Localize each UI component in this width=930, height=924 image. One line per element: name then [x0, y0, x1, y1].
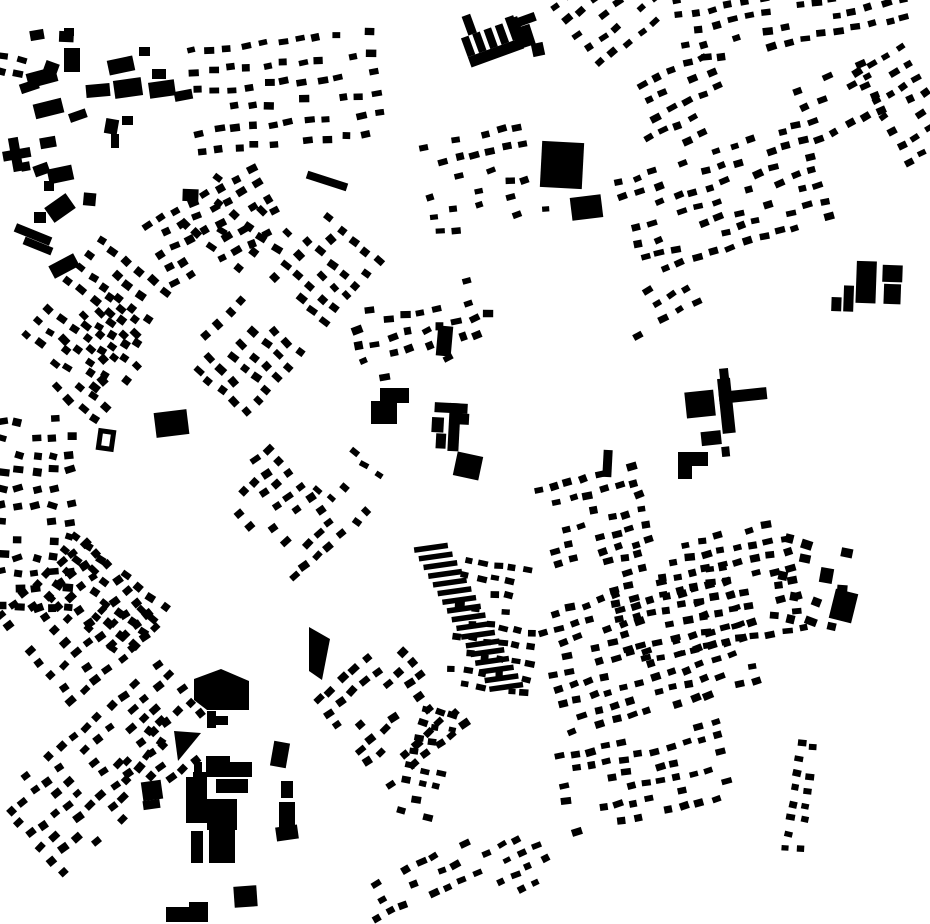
building: [452, 633, 461, 641]
building: [299, 95, 309, 103]
building: [461, 680, 469, 687]
building: [230, 123, 241, 132]
building: [264, 102, 274, 110]
industrial-cross: [719, 368, 729, 381]
building: [230, 102, 239, 110]
building: [111, 134, 119, 148]
building: [13, 536, 22, 543]
building: [447, 666, 455, 672]
building: [507, 564, 516, 572]
building: [48, 552, 57, 560]
building: [781, 845, 788, 851]
courtyard-building-group: [96, 428, 117, 452]
industrial-cross: [701, 430, 722, 446]
building: [64, 451, 74, 460]
building: [104, 118, 119, 135]
building: [207, 799, 237, 830]
building: [226, 63, 235, 71]
building: [837, 585, 848, 594]
building: [0, 518, 6, 525]
building: [436, 228, 445, 234]
industrial-cross: [721, 446, 730, 457]
building: [0, 602, 6, 609]
building: [14, 569, 23, 577]
building: [188, 69, 199, 76]
building: [607, 773, 617, 781]
building: [571, 751, 581, 759]
building: [572, 695, 581, 703]
building: [313, 57, 322, 65]
building: [800, 35, 810, 42]
building: [244, 84, 254, 92]
building: [193, 86, 201, 93]
cross-building: [435, 433, 446, 449]
building: [343, 132, 351, 139]
big-square-hall: [540, 141, 584, 189]
building: [560, 797, 571, 805]
building: [716, 53, 725, 61]
building: [366, 50, 377, 58]
building: [805, 773, 815, 780]
building: [0, 468, 10, 476]
building: [570, 194, 604, 221]
building: [833, 13, 841, 19]
building: [209, 88, 219, 94]
building: [641, 779, 651, 786]
building: [152, 69, 166, 79]
building: [677, 600, 686, 608]
building: [216, 779, 248, 793]
building: [451, 136, 460, 143]
building: [620, 554, 629, 562]
building: [364, 306, 374, 314]
building: [279, 802, 295, 827]
building: [323, 136, 333, 144]
building: [34, 212, 46, 223]
plus-building: [20, 161, 30, 171]
building: [44, 181, 54, 191]
building: [303, 136, 313, 144]
building: [365, 28, 375, 35]
building: [141, 780, 163, 802]
bar-towers: [855, 261, 876, 304]
building: [270, 141, 279, 148]
building: [206, 756, 230, 777]
building: [791, 783, 799, 790]
building: [589, 506, 598, 515]
building: [209, 830, 235, 863]
building: [281, 781, 293, 798]
building: [321, 116, 329, 123]
building: [519, 689, 529, 696]
building: [64, 48, 80, 72]
building: [189, 902, 208, 922]
building: [233, 885, 257, 908]
bar-towers: [843, 285, 854, 311]
building: [222, 45, 231, 52]
bar-towers: [883, 284, 901, 305]
building: [698, 538, 707, 545]
building: [709, 592, 719, 601]
building: [495, 671, 502, 677]
building: [191, 831, 203, 863]
building: [403, 327, 411, 336]
building: [673, 574, 682, 581]
building: [797, 845, 805, 852]
building: [692, 9, 701, 17]
building: [811, 0, 822, 7]
building: [617, 817, 626, 825]
building: [384, 315, 395, 322]
building: [139, 47, 150, 56]
building: [427, 738, 436, 746]
building: [664, 805, 673, 814]
building: [186, 777, 207, 823]
building: [494, 562, 503, 569]
building: [466, 650, 475, 657]
courtyard-building-courtyard: [101, 434, 111, 447]
building: [765, 551, 775, 559]
building: [435, 322, 443, 330]
cross-building: [431, 417, 444, 433]
building: [449, 205, 457, 212]
building: [249, 141, 258, 148]
building: [469, 621, 477, 628]
building: [483, 310, 493, 318]
building: [629, 800, 638, 808]
bar-towers: [831, 297, 841, 311]
building: [353, 93, 362, 100]
building: [501, 609, 510, 615]
building: [249, 121, 257, 129]
building: [498, 639, 508, 646]
building: [400, 311, 410, 318]
building: [770, 612, 779, 619]
building: [809, 744, 817, 750]
building: [354, 341, 364, 351]
building: [47, 434, 56, 442]
building: [83, 192, 97, 206]
building: [850, 23, 860, 31]
building: [332, 32, 340, 38]
building: [542, 206, 549, 212]
building: [248, 101, 257, 109]
industrial-cross: [684, 390, 716, 419]
building: [375, 109, 385, 116]
map-canvas: [0, 0, 930, 924]
building: [694, 26, 703, 34]
building: [633, 239, 643, 248]
building: [674, 11, 682, 18]
building: [505, 177, 515, 184]
building: [204, 47, 214, 54]
building: [748, 541, 758, 549]
building: [774, 581, 783, 589]
building: [483, 639, 491, 645]
building: [816, 29, 826, 37]
building: [714, 609, 723, 617]
building: [68, 432, 77, 440]
building: [265, 79, 275, 86]
building: [684, 680, 693, 689]
building: [64, 603, 73, 611]
building: [30, 570, 39, 577]
building: [508, 689, 515, 695]
building: [762, 27, 773, 36]
building: [85, 83, 110, 98]
building: [279, 58, 287, 65]
building: [50, 537, 59, 545]
building: [490, 591, 499, 598]
market-hall: [154, 409, 190, 438]
building: [213, 145, 222, 154]
building: [789, 592, 799, 602]
building: [430, 214, 438, 220]
building: [662, 607, 671, 615]
building: [792, 608, 802, 615]
building: [198, 148, 207, 155]
building: [304, 116, 315, 123]
building: [749, 632, 758, 639]
building: [471, 606, 480, 612]
building: [526, 643, 535, 651]
building: [633, 750, 642, 758]
building: [572, 764, 581, 771]
building: [122, 116, 133, 125]
building: [684, 553, 695, 561]
building: [619, 756, 630, 763]
building: [13, 465, 24, 473]
building: [339, 93, 348, 101]
building: [761, 9, 771, 16]
building: [599, 803, 608, 811]
building: [0, 52, 8, 59]
building: [47, 517, 57, 525]
building: [49, 465, 59, 472]
building: [229, 762, 252, 777]
building: [242, 64, 250, 72]
building: [51, 415, 60, 422]
cross-building: [459, 413, 470, 425]
building: [621, 768, 632, 776]
building: [59, 31, 74, 42]
building: [209, 67, 219, 74]
building: [0, 550, 9, 558]
building: [487, 621, 496, 628]
building: [451, 227, 461, 234]
building: [32, 468, 42, 477]
building: [34, 452, 42, 460]
building: [166, 907, 190, 922]
building: [207, 716, 228, 725]
building: [236, 144, 244, 151]
building: [528, 630, 536, 637]
building: [637, 506, 645, 513]
building: [62, 583, 73, 592]
building: [32, 435, 41, 442]
building: [587, 761, 596, 770]
building: [819, 567, 834, 584]
bar-towers: [882, 265, 903, 283]
building: [227, 87, 236, 93]
building: [798, 739, 807, 746]
building: [782, 628, 793, 634]
building: [716, 546, 725, 553]
figure-ground-map: [0, 0, 930, 924]
building: [455, 601, 465, 609]
building: [481, 654, 489, 661]
building: [641, 521, 650, 529]
building: [796, 1, 804, 8]
building: [803, 788, 812, 795]
